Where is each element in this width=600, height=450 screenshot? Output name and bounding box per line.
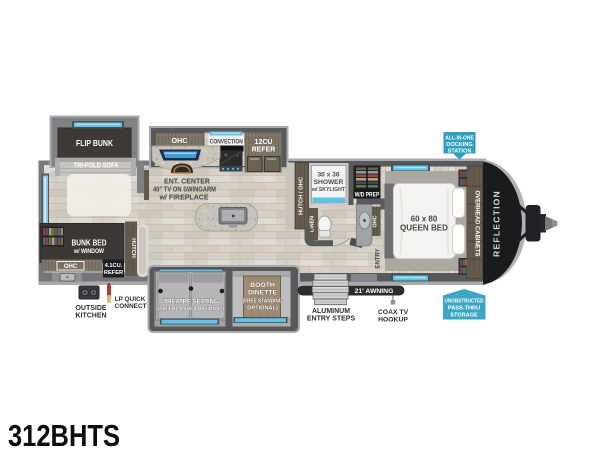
svg-text:CONNECT: CONNECT xyxy=(115,303,147,310)
svg-text:W/D PREP: W/D PREP xyxy=(355,192,380,198)
svg-text:OHC: OHC xyxy=(373,215,379,227)
svg-text:ENTRY: ENTRY xyxy=(376,248,382,268)
svg-text:40" TV ON SWINGARM: 40" TV ON SWINGARM xyxy=(153,187,216,194)
svg-text:LP QUICK: LP QUICK xyxy=(115,296,146,303)
svg-text:OHC: OHC xyxy=(172,136,188,145)
svg-text:STATION: STATION xyxy=(448,148,472,154)
svg-text:SHOWER: SHOWER xyxy=(314,179,344,186)
svg-text:60 x 80: 60 x 80 xyxy=(411,215,438,224)
svg-text:THEATRE SEATING: THEATRE SEATING xyxy=(164,299,219,306)
svg-text:OHC: OHC xyxy=(64,264,78,270)
svg-text:OUTSIDE: OUTSIDE xyxy=(75,305,106,312)
svg-text:HUTCH: HUTCH xyxy=(130,238,136,258)
svg-text:REFER: REFER xyxy=(252,147,276,154)
svg-text:STORAGE: STORAGE xyxy=(450,313,478,319)
svg-text:ALL-IN-ONE: ALL-IN-ONE xyxy=(445,136,474,142)
svg-text:UNOBSTRUCTED: UNOBSTRUCTED xyxy=(445,299,484,305)
svg-text:w/ FIREPLACE: w/ FIREPLACE xyxy=(158,195,208,202)
svg-text:ENT. CENTER: ENT. CENTER xyxy=(164,179,210,186)
svg-text:COAX TV: COAX TV xyxy=(378,309,409,316)
svg-text:DOCKING: DOCKING xyxy=(446,142,472,148)
svg-text:CONVECTION: CONVECTION xyxy=(210,138,243,145)
svg-text:OVERHEAD CABINETS: OVERHEAD CABINETS xyxy=(474,191,481,257)
svg-text:4.1CU.: 4.1CU. xyxy=(105,263,123,269)
svg-text:12CU: 12CU xyxy=(255,139,273,146)
svg-text:w/ SKYLIGHT: w/ SKYLIGHT xyxy=(311,187,346,193)
svg-text:QUEEN BED: QUEEN BED xyxy=(400,224,448,233)
svg-text:KITCHEN: KITCHEN xyxy=(75,313,106,320)
svg-text:BUNK BED: BUNK BED xyxy=(72,239,107,248)
svg-text:OPTIONAL): OPTIONAL) xyxy=(247,306,278,312)
svg-text:312BHTS: 312BHTS xyxy=(8,418,120,450)
svg-text:w/ WINDOW: w/ WINDOW xyxy=(73,248,104,255)
svg-text:REFER: REFER xyxy=(104,270,123,276)
svg-text:PASS-THRU: PASS-THRU xyxy=(448,306,480,312)
svg-text:HOOKUP: HOOKUP xyxy=(378,317,408,324)
svg-text:ALUMINUM: ALUMINUM xyxy=(312,308,350,315)
svg-text:30 x 36: 30 x 36 xyxy=(318,172,340,179)
svg-text:HUTCH / OHC: HUTCH / OHC xyxy=(299,176,305,215)
svg-text:BOOTH: BOOTH xyxy=(250,282,275,289)
svg-text:ENTRY STEPS: ENTRY STEPS xyxy=(307,316,356,323)
svg-text:DINETTE: DINETTE xyxy=(248,290,278,297)
svg-text:(TRI-FOLD SOFA OPTIONAL): (TRI-FOLD SOFA OPTIONAL) xyxy=(158,307,224,313)
svg-text:FLIP BUNK: FLIP BUNK xyxy=(76,139,113,148)
svg-text:(FREE STANDING: (FREE STANDING xyxy=(243,299,283,305)
svg-text:REFLECTION: REFLECTION xyxy=(492,190,502,257)
svg-text:TRI-FOLD SOFA: TRI-FOLD SOFA xyxy=(74,163,119,170)
svg-text:21' AWNING: 21' AWNING xyxy=(355,288,394,295)
